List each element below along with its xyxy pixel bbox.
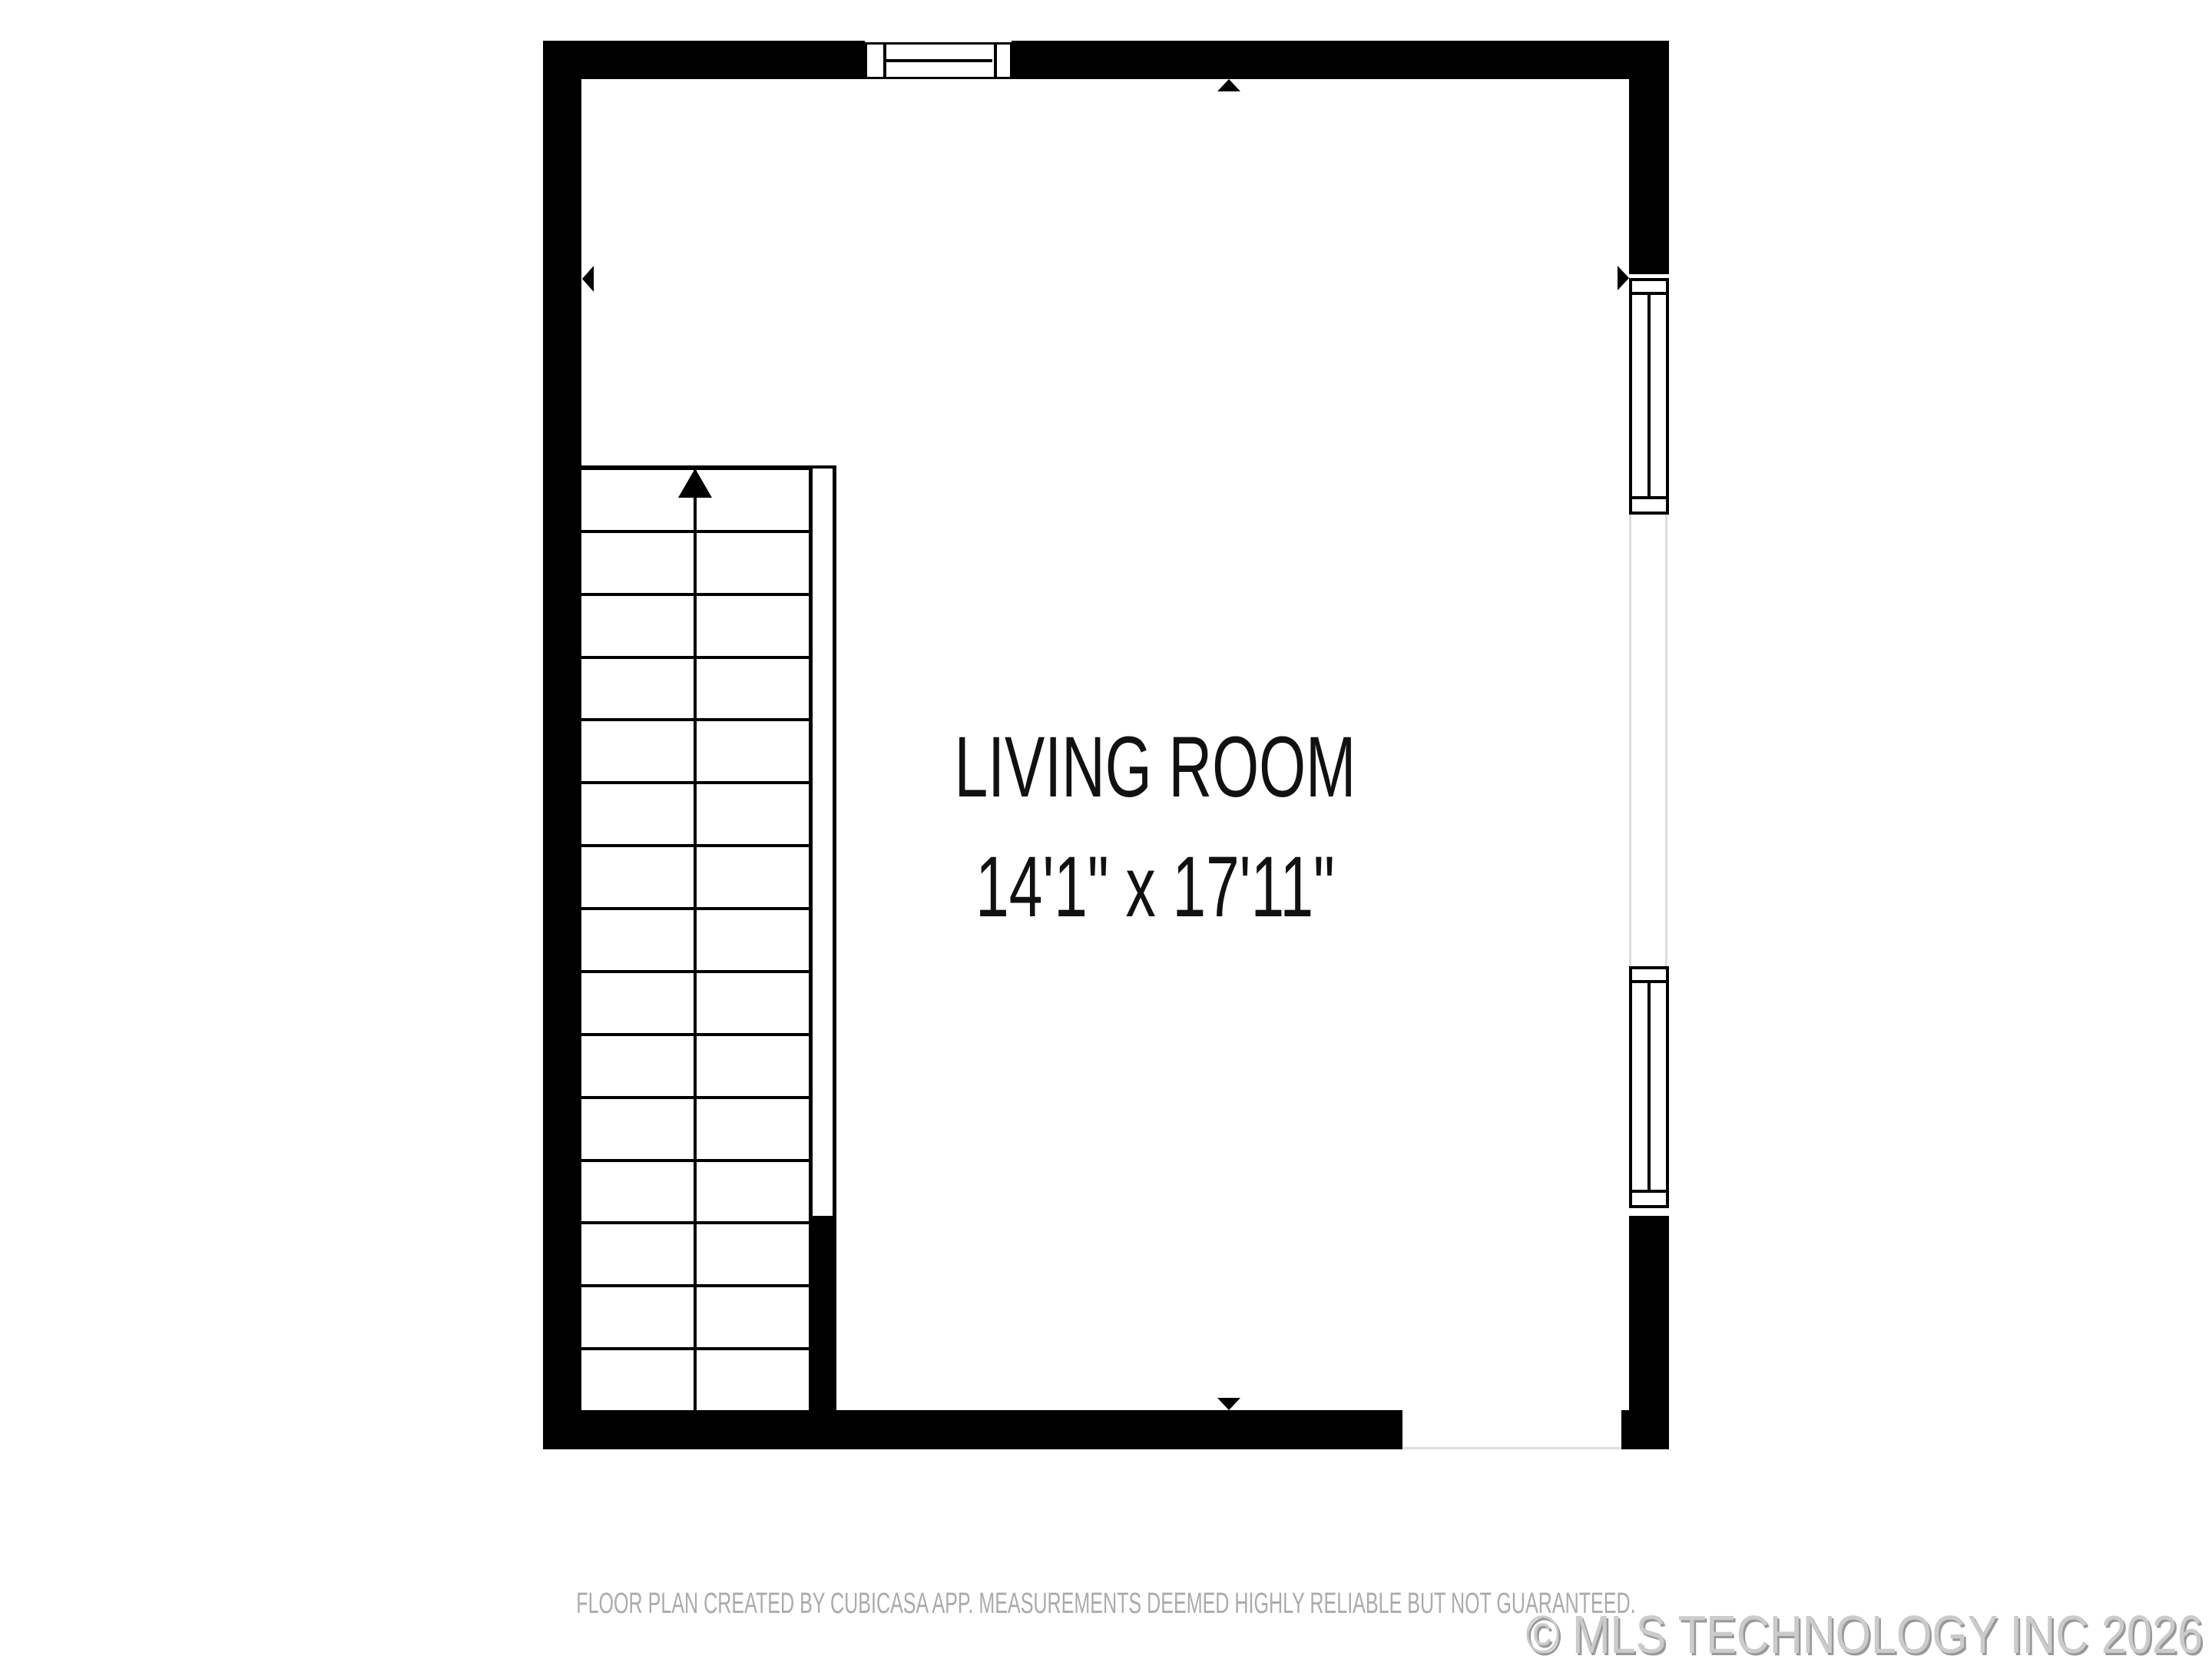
wall-top-left-segment xyxy=(543,41,865,79)
floor-plan-canvas: LIVING ROOM 14'1" x 17'11" FLOOR PLAN CR… xyxy=(0,0,2212,1659)
room-name: LIVING ROOM xyxy=(779,718,1532,816)
wall-left xyxy=(543,41,581,1449)
window-right-lower xyxy=(1629,966,1669,1208)
window-sill xyxy=(1632,1190,1666,1193)
wall-bottom-right-corner xyxy=(1621,1410,1669,1449)
stair-railing-wall xyxy=(809,1216,836,1410)
room-dimensions: 14'1" x 17'11" xyxy=(779,838,1532,936)
marker-top-icon xyxy=(1217,79,1240,91)
window-pane-divider xyxy=(1647,295,1651,496)
marker-bottom-icon xyxy=(1217,1398,1240,1410)
window-top xyxy=(865,42,1012,79)
footer-disclaimer: FLOOR PLAN CREATED BY CUBICASA APP. MEAS… xyxy=(576,1587,1635,1621)
footer-copyright-watermark: © MLS TECHNOLOGY INC 2026 xyxy=(1525,1607,2203,1659)
wall-top-right-segment xyxy=(1012,41,1669,79)
window-pane-divider xyxy=(1647,983,1651,1190)
window-right-upper xyxy=(1629,278,1669,515)
wall-right-upper xyxy=(1629,41,1669,274)
wall-bottom xyxy=(543,1410,1402,1449)
window-sill xyxy=(1632,496,1666,499)
marker-right-icon xyxy=(1618,266,1629,290)
window-frame-divider xyxy=(994,45,997,77)
room-label: LIVING ROOM 14'1" x 17'11" xyxy=(618,718,1693,936)
stair-center-line xyxy=(694,467,697,1410)
window-pane-divider xyxy=(886,59,992,62)
stairs-up-arrow-icon xyxy=(678,469,712,498)
opening-bottom-line xyxy=(1402,1447,1621,1449)
marker-left-icon xyxy=(582,266,594,292)
